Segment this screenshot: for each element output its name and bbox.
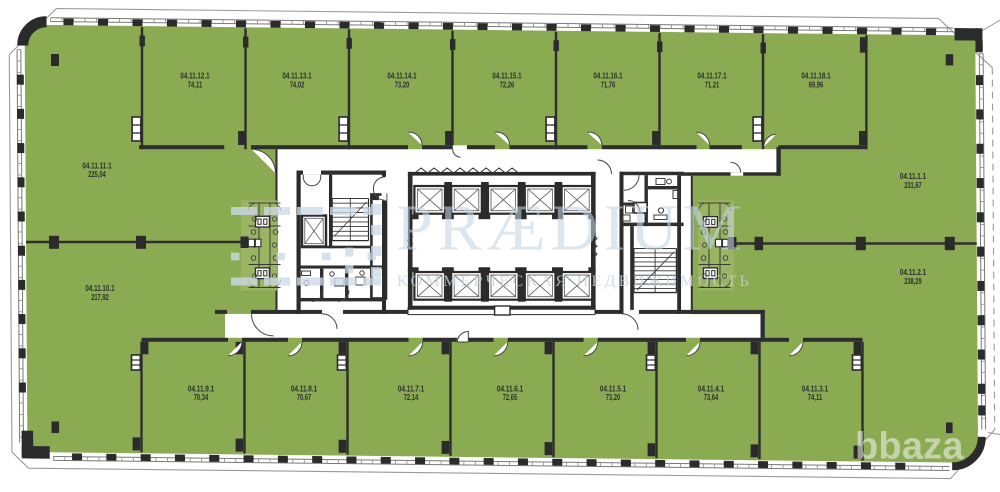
svg-text:04.11.1.1: 04.11.1.1 — [900, 172, 927, 181]
svg-text:04.11.2.1: 04.11.2.1 — [900, 268, 927, 277]
svg-text:72,26: 72,26 — [500, 81, 515, 90]
svg-text:04.11.6.1: 04.11.6.1 — [497, 384, 524, 393]
svg-text:231,67: 231,67 — [904, 181, 922, 190]
svg-text:72,65: 72,65 — [503, 393, 518, 402]
svg-text:04.11.12.1: 04.11.12.1 — [180, 72, 210, 81]
svg-text:04.11.16.1: 04.11.16.1 — [593, 72, 623, 81]
svg-text:04.11.3.1: 04.11.3.1 — [802, 384, 829, 393]
svg-text:72,14: 72,14 — [404, 393, 419, 402]
svg-text:04.11.7.1: 04.11.7.1 — [398, 384, 425, 393]
svg-text:71,76: 71,76 — [601, 81, 616, 90]
svg-text:71,21: 71,21 — [705, 81, 720, 90]
svg-text:04.11.5.1: 04.11.5.1 — [600, 384, 627, 393]
svg-text:69,96: 69,96 — [809, 81, 824, 90]
svg-text:04.11.10.1: 04.11.10.1 — [85, 284, 115, 293]
svg-text:PRÆDIUM: PRÆDIUM — [396, 192, 746, 265]
svg-text:74,11: 74,11 — [808, 393, 823, 402]
svg-text:70,67: 70,67 — [297, 393, 312, 402]
svg-text:74,02: 74,02 — [290, 81, 305, 90]
svg-text:73,64: 73,64 — [704, 393, 719, 402]
svg-text:217,92: 217,92 — [91, 293, 109, 302]
svg-text:04.11.8.1: 04.11.8.1 — [291, 384, 318, 393]
svg-text:73,20: 73,20 — [395, 81, 410, 90]
svg-text:04.11.14.1: 04.11.14.1 — [387, 72, 417, 81]
svg-text:bbaza: bbaza — [855, 426, 964, 468]
svg-text:238,29: 238,29 — [904, 277, 922, 286]
svg-text:04.11.18.1: 04.11.18.1 — [801, 72, 831, 81]
svg-text:04.11.13.1: 04.11.13.1 — [282, 72, 312, 81]
svg-text:04.11.11.1: 04.11.11.1 — [82, 161, 112, 170]
svg-text:73,20: 73,20 — [606, 393, 621, 402]
svg-text:04.11.17.1: 04.11.17.1 — [697, 72, 727, 81]
svg-text:КОММЕРЧЕСКАЯ НЕДВИЖИМОСТЬ: КОММЕРЧЕСКАЯ НЕДВИЖИМОСТЬ — [397, 273, 752, 290]
svg-text:04.11.9.1: 04.11.9.1 — [188, 384, 215, 393]
svg-text:225,04: 225,04 — [88, 170, 106, 179]
svg-text:74,11: 74,11 — [188, 81, 203, 90]
svg-text:04.11.4.1: 04.11.4.1 — [698, 384, 725, 393]
svg-text:04.11.15.1: 04.11.15.1 — [492, 72, 522, 81]
svg-text:70,34: 70,34 — [194, 393, 209, 402]
